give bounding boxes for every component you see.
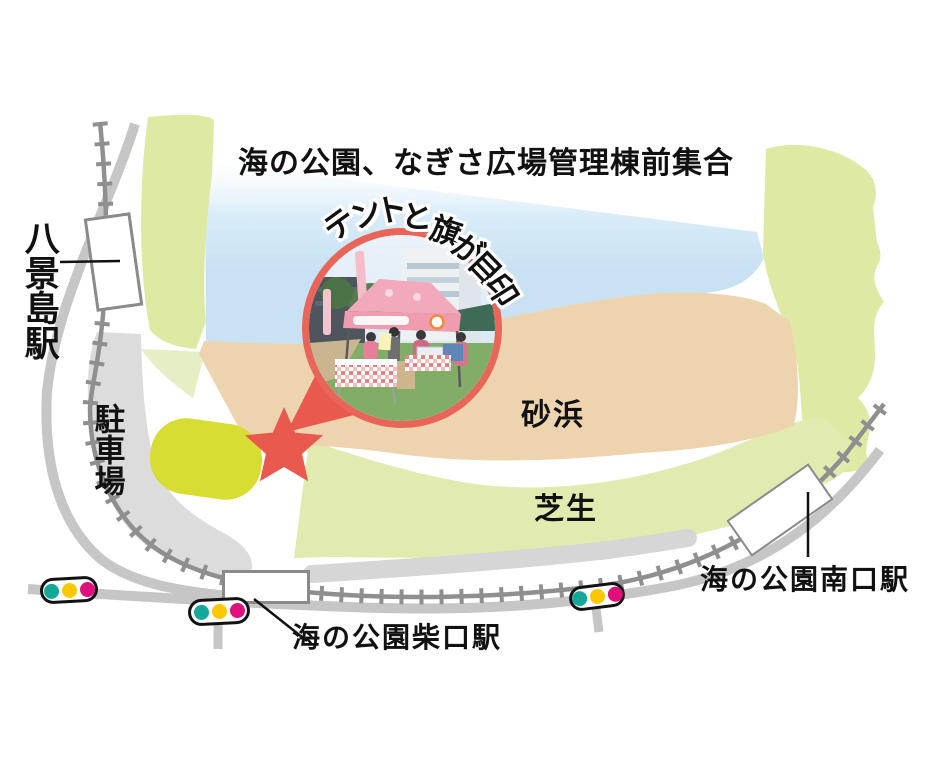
parking-label: 駐車場 xyxy=(90,403,123,496)
photo-roof-swirl xyxy=(413,293,421,301)
traffic-light-center xyxy=(187,596,250,626)
callout-arc-char: と xyxy=(401,191,434,237)
map-title: 海の公園、なぎさ広場管理棟前集合 xyxy=(238,138,734,182)
beach-label: 砂浜 xyxy=(521,390,585,434)
traffic-light-dot xyxy=(607,586,624,603)
road-stub-tl3 xyxy=(596,608,599,632)
photo-valance-text xyxy=(353,316,409,325)
photo-person-head xyxy=(456,332,466,342)
traffic-light-dot xyxy=(43,583,59,599)
traffic-light-west xyxy=(39,576,98,605)
photo-table-cloth xyxy=(405,355,451,371)
lawn-label: 芝生 xyxy=(534,484,598,528)
photo-banner-flag xyxy=(323,289,331,335)
photo-roof-swirl xyxy=(385,289,393,297)
traffic-light-dot xyxy=(79,581,95,597)
traffic-light-dot xyxy=(61,582,77,598)
traffic-light-dot xyxy=(571,590,588,607)
traffic-light-dot xyxy=(211,604,227,620)
photo-table-top xyxy=(335,359,397,365)
hakkeijima-station-label: 八景島駅 xyxy=(20,220,57,360)
shibaguchi-station-label: 海の公園柴口駅 xyxy=(292,616,502,656)
photo-person-head xyxy=(366,332,376,342)
park-area-west-tip xyxy=(141,349,205,398)
park-area-west xyxy=(141,115,214,349)
minamiguchi-station-label: 海の公園南口駅 xyxy=(700,558,910,598)
traffic-light-dot xyxy=(229,603,245,619)
traffic-light-dot xyxy=(589,588,606,605)
park-access-map: テントと旗が目印 海の公園、なぎさ広場管理棟前集合 八景島駅 駐車場 砂浜 芝生… xyxy=(0,0,945,768)
photo-person-body xyxy=(363,341,378,360)
traffic-light-dot xyxy=(193,605,209,621)
photo-person-head xyxy=(416,330,426,340)
photo-paper-note xyxy=(378,333,391,351)
photo-logo-circle xyxy=(431,316,444,329)
